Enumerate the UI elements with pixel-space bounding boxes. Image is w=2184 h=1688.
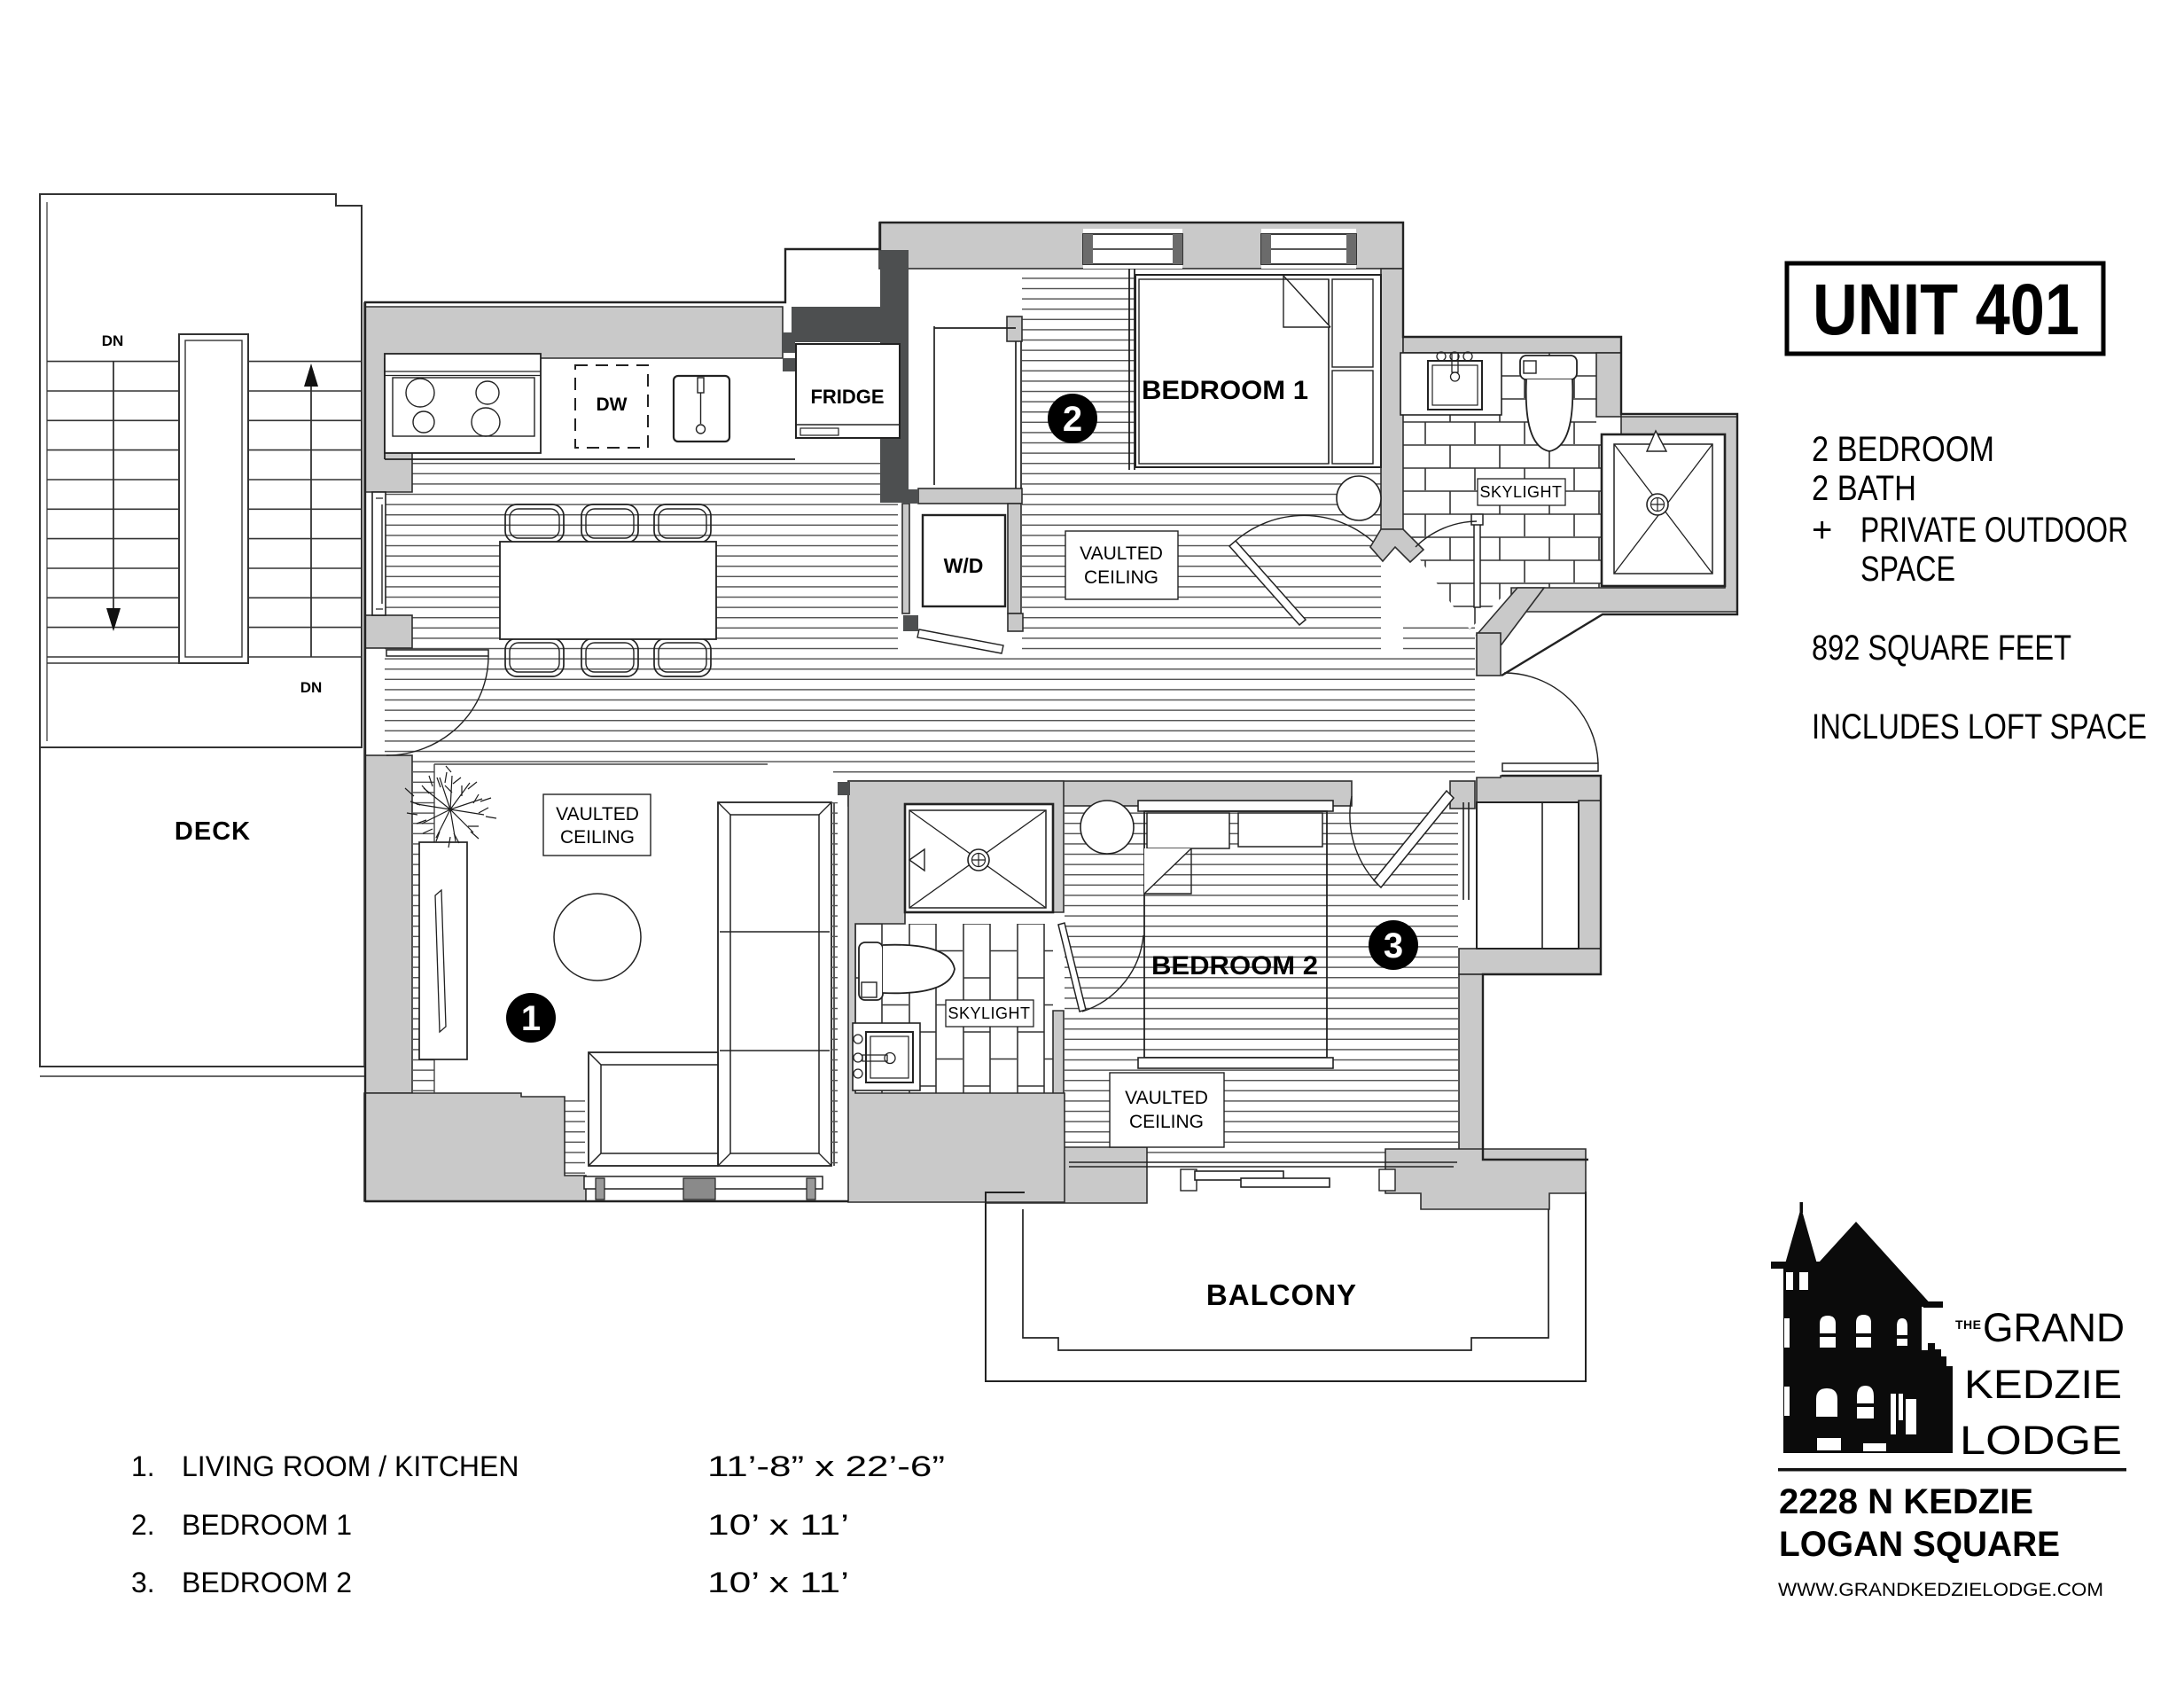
svg-text:DN: DN (102, 332, 124, 349)
svg-text:BEDROOM 2: BEDROOM 2 (182, 1567, 352, 1598)
svg-text:LOGAN SQUARE: LOGAN SQUARE (1779, 1525, 2060, 1564)
svg-text:WWW.GRANDKEDZIELODGE.COM: WWW.GRANDKEDZIELODGE.COM (1778, 1580, 2103, 1600)
svg-text:BEDROOM 2: BEDROOM 2 (1151, 951, 1318, 981)
svg-text:KEDZIE: KEDZIE (1964, 1362, 2122, 1407)
svg-text:11’-8” x 22’-6”: 11’-8” x 22’-6” (707, 1450, 945, 1482)
svg-text:VAULTED: VAULTED (556, 804, 639, 824)
svg-text:2 BATH: 2 BATH (1812, 469, 1916, 508)
svg-text:INCLUDES LOFT SPACE: INCLUDES LOFT SPACE (1812, 707, 2147, 746)
svg-text:THE: THE (1955, 1317, 1982, 1332)
svg-text:BALCONY: BALCONY (1206, 1278, 1357, 1311)
svg-text:2 BEDROOM: 2 BEDROOM (1812, 430, 1994, 469)
svg-text:+: + (1812, 511, 1832, 550)
svg-text:BEDROOM 1: BEDROOM 1 (1142, 376, 1308, 405)
svg-text:3.: 3. (131, 1567, 155, 1598)
svg-text:CEILING: CEILING (560, 827, 635, 848)
svg-text:FRIDGE: FRIDGE (810, 386, 884, 408)
svg-text:SKYLIGHT: SKYLIGHT (948, 1004, 1030, 1022)
svg-text:2228 N KEDZIE: 2228 N KEDZIE (1779, 1482, 2033, 1521)
svg-text:DECK: DECK (175, 817, 251, 846)
svg-text:GRAND: GRAND (1983, 1305, 2125, 1350)
svg-text:VAULTED: VAULTED (1125, 1088, 1208, 1108)
svg-text:10’ x 11’: 10’ x 11’ (707, 1567, 849, 1598)
svg-text:2: 2 (1063, 400, 1082, 439)
svg-text:LIVING ROOM / KITCHEN: LIVING ROOM / KITCHEN (182, 1450, 519, 1482)
svg-text:892 SQUARE FEET: 892 SQUARE FEET (1812, 629, 2071, 668)
svg-text:DN: DN (300, 679, 323, 696)
svg-text:PRIVATE OUTDOOR: PRIVATE OUTDOOR (1860, 511, 2128, 550)
svg-text:BEDROOM 1: BEDROOM 1 (182, 1509, 352, 1541)
svg-text:CEILING: CEILING (1084, 567, 1158, 588)
svg-text:W/D: W/D (944, 554, 984, 577)
svg-text:SKYLIGHT: SKYLIGHT (1479, 483, 1562, 501)
svg-text:1: 1 (521, 999, 541, 1038)
svg-text:VAULTED: VAULTED (1080, 543, 1163, 564)
svg-text:10’ x 11’: 10’ x 11’ (707, 1509, 849, 1541)
svg-text:CEILING: CEILING (1129, 1112, 1204, 1132)
svg-text:UNIT 401: UNIT 401 (1813, 270, 2079, 350)
svg-text:1.: 1. (131, 1450, 155, 1482)
svg-text:2.: 2. (131, 1509, 155, 1541)
svg-text:DW: DW (597, 395, 628, 415)
svg-text:3: 3 (1384, 926, 1403, 965)
svg-text:LODGE: LODGE (1960, 1418, 2122, 1463)
svg-text:SPACE: SPACE (1860, 550, 1955, 589)
